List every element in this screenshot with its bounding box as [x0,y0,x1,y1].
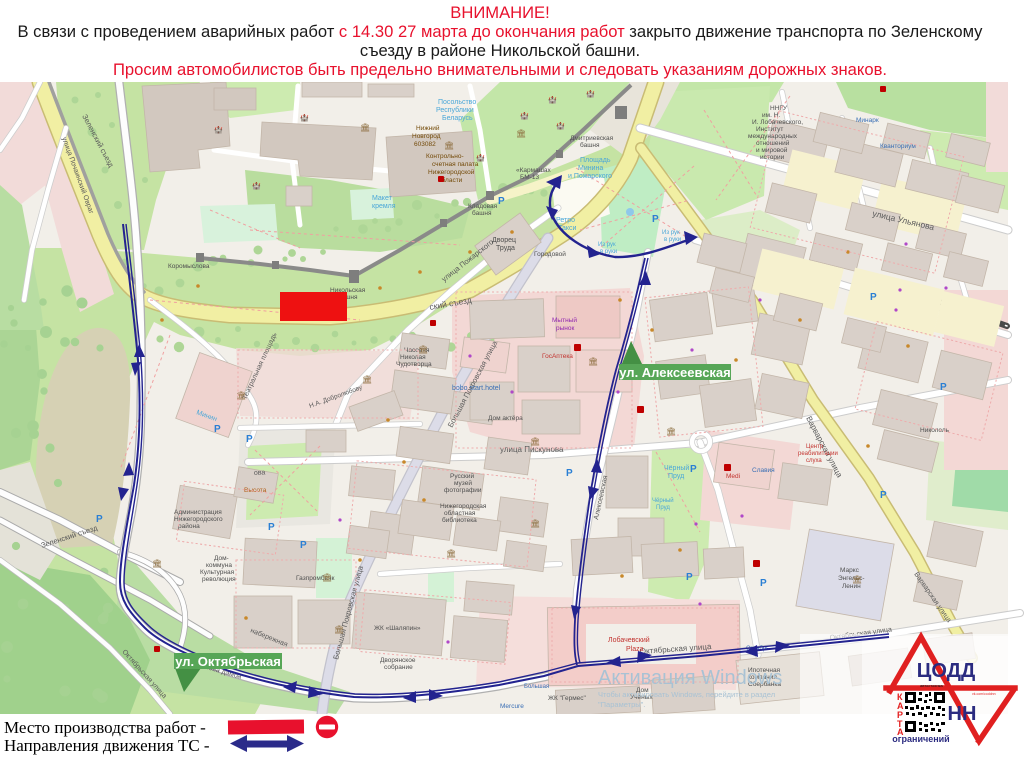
svg-text:vk.com/coddnn: vk.com/coddnn [972,692,996,696]
svg-text:Центр: Центр [806,444,824,450]
svg-text:Дом-: Дом- [214,555,229,562]
svg-text:фотографии: фотографии [444,487,482,494]
svg-text:603082: 603082 [414,141,436,148]
svg-text:«Кармашах: «Кармашах [516,167,552,174]
svg-text:кремля: кремля [372,203,396,210]
svg-text:ул. Алексеевская: ул. Алексеевская [619,365,731,380]
svg-text:Площадь: Площадь [580,157,611,164]
svg-text:🏛: 🏛 [322,573,332,582]
svg-text:P: P [96,514,103,525]
svg-text:P: P [870,292,877,303]
svg-text:Администрация: Администрация [174,509,222,516]
svg-text:НН: НН [948,703,977,725]
svg-text:Ретро: Ретро [556,217,575,224]
svg-text:Нижегородская: Нижегородская [440,503,487,510]
svg-text:Городовой: Городовой [534,250,566,258]
svg-text:и мировой: и мировой [756,146,788,154]
svg-text:международных: международных [748,133,798,140]
svg-text:P: P [690,464,697,475]
svg-text:🏛: 🏛 [446,549,456,558]
svg-text:района: района [178,522,200,530]
svg-text:P: P [300,540,307,551]
svg-text:Чёрный: Чёрный [652,497,674,504]
svg-text:Славия: Славия [752,467,775,474]
svg-text:Никополь: Никополь [920,427,950,434]
svg-text:"Параметры".: "Параметры". [598,700,645,709]
svg-text:и Пожарского: и Пожарского [568,173,612,180]
svg-text:ограничений: ограничений [892,734,949,744]
svg-text:Николая: Николая [400,354,426,361]
svg-text:реабилитации: реабилитации [798,451,838,457]
svg-text:Кладовая: Кладовая [468,203,498,210]
svg-text:🏰: 🏰 [520,111,529,120]
svg-text:областная: областная [444,509,476,517]
svg-text:собрание: собрание [384,663,413,671]
svg-text:Посольство: Посольство [438,99,476,106]
svg-text:🏛: 🏛 [852,575,862,584]
svg-text:🏛: 🏛 [334,625,344,634]
svg-text:ул. Октябрьская: ул. Октябрьская [175,654,281,669]
svg-text:P: P [268,522,275,533]
svg-text:Чудотворца: Чудотворца [396,361,432,368]
svg-text:🏛: 🏛 [152,559,162,568]
svg-text:🏛: 🏛 [588,357,598,366]
svg-text:P: P [686,572,693,583]
svg-text:Дмитриевская: Дмитриевская [570,135,614,142]
svg-text:🏛: 🏛 [362,375,372,384]
svg-text:революция: революция [202,576,236,583]
svg-text:ННГУ: ННГУ [770,105,788,112]
svg-text:слуха: слуха [806,458,822,464]
svg-text:Mercure: Mercure [500,703,524,710]
svg-text:🏛: 🏛 [236,391,246,400]
svg-text:🏛: 🏛 [444,141,454,150]
svg-text:P: P [246,434,253,445]
svg-text:истории: истории [760,154,785,161]
svg-text:улица Пискунова: улица Пискунова [500,445,564,454]
svg-text:Беларусь: Беларусь [442,115,473,122]
svg-text:автостоянка: автостоянка [920,683,943,688]
svg-text:🏰: 🏰 [586,89,595,98]
svg-text:🏛: 🏛 [418,345,428,354]
svg-text:P: P [498,196,505,207]
svg-text:Минарк: Минарк [856,117,879,124]
svg-text:🏰: 🏰 [252,181,261,190]
svg-text:библиотека: библиотека [442,516,477,524]
svg-text:счетная палата: счетная палата [432,161,479,168]
svg-text:Medi: Medi [726,473,740,480]
svg-text:🏰: 🏰 [214,125,223,134]
svg-text:Дом актёра: Дом актёра [488,415,523,422]
svg-text:коммуна: коммуна [206,562,232,569]
svg-text:P: P [214,424,221,435]
svg-text:Из рук: Из рук [662,230,680,236]
svg-text:отношений: отношений [756,139,790,147]
svg-text:🏛: 🏛 [516,129,526,138]
svg-text:башня: башня [472,209,492,217]
svg-text:Из рук: Из рук [598,242,616,248]
svg-text:музей: музей [454,479,472,487]
svg-text:P: P [760,578,767,589]
svg-text:Республики: Республики [436,106,474,114]
svg-text:Пруд: Пруд [656,505,670,511]
svg-text:Дворец: Дворец [492,237,516,244]
svg-text:Институт: Институт [756,126,783,133]
svg-text:🏰: 🏰 [300,113,309,122]
svg-text:🏛: 🏛 [360,123,370,132]
svg-text:БМ-13: БМ-13 [520,174,539,181]
svg-text:P: P [652,214,659,225]
svg-text:Макет: Макет [372,195,393,202]
svg-text:🏰: 🏰 [476,153,485,162]
svg-text:Минина: Минина [578,165,603,172]
svg-text:Дворянское: Дворянское [380,657,416,664]
svg-text:рынок: рынок [556,325,574,332]
svg-text:P: P [880,490,887,501]
svg-text:Лобачевский: Лобачевский [608,636,650,644]
svg-text:Маркс: Маркс [840,567,860,574]
svg-text:Мытный: Мытный [552,316,577,324]
svg-text:Ленин: Ленин [842,583,861,590]
svg-text:🏰: 🏰 [556,121,565,130]
svg-text:Нижегородской: Нижегородской [428,168,475,176]
svg-text:И. Лобачевского,: И. Лобачевского, [752,118,803,126]
svg-text:Пруд: Пруд [668,473,684,480]
svg-text:ЖК «Шаляпин»: ЖК «Шаляпин» [374,625,421,632]
svg-text:Коромыслова: Коромыслова [168,263,210,270]
svg-text:🏰: 🏰 [548,95,557,104]
svg-text:Нижний: Нижний [416,124,440,132]
svg-text:Чёрный: Чёрный [664,464,689,472]
svg-text:P: P [940,382,947,393]
svg-text:ЦОДД: ЦОДД [917,660,975,682]
svg-text:Труда: Труда [496,245,515,252]
svg-text:башня: башня [580,141,600,149]
svg-text:Большая: Большая [524,684,549,690]
svg-text:bobo start.hotel: bobo start.hotel [452,385,501,392]
svg-text:ова: ова [254,469,266,477]
svg-text:Контрольно-: Контрольно- [426,153,464,160]
svg-text:🏛: 🏛 [530,437,540,446]
svg-text:Культурная: Культурная [200,569,235,576]
svg-text:ГосАптека: ГосАптека [542,353,573,360]
svg-text:Нижегородского: Нижегородского [174,516,223,523]
svg-text:ЖК "Гермес": ЖК "Гермес" [548,695,587,702]
svg-text:🏛: 🏛 [666,427,676,436]
svg-text:Новгород: Новгород [412,133,441,140]
svg-text:P: P [566,468,573,479]
